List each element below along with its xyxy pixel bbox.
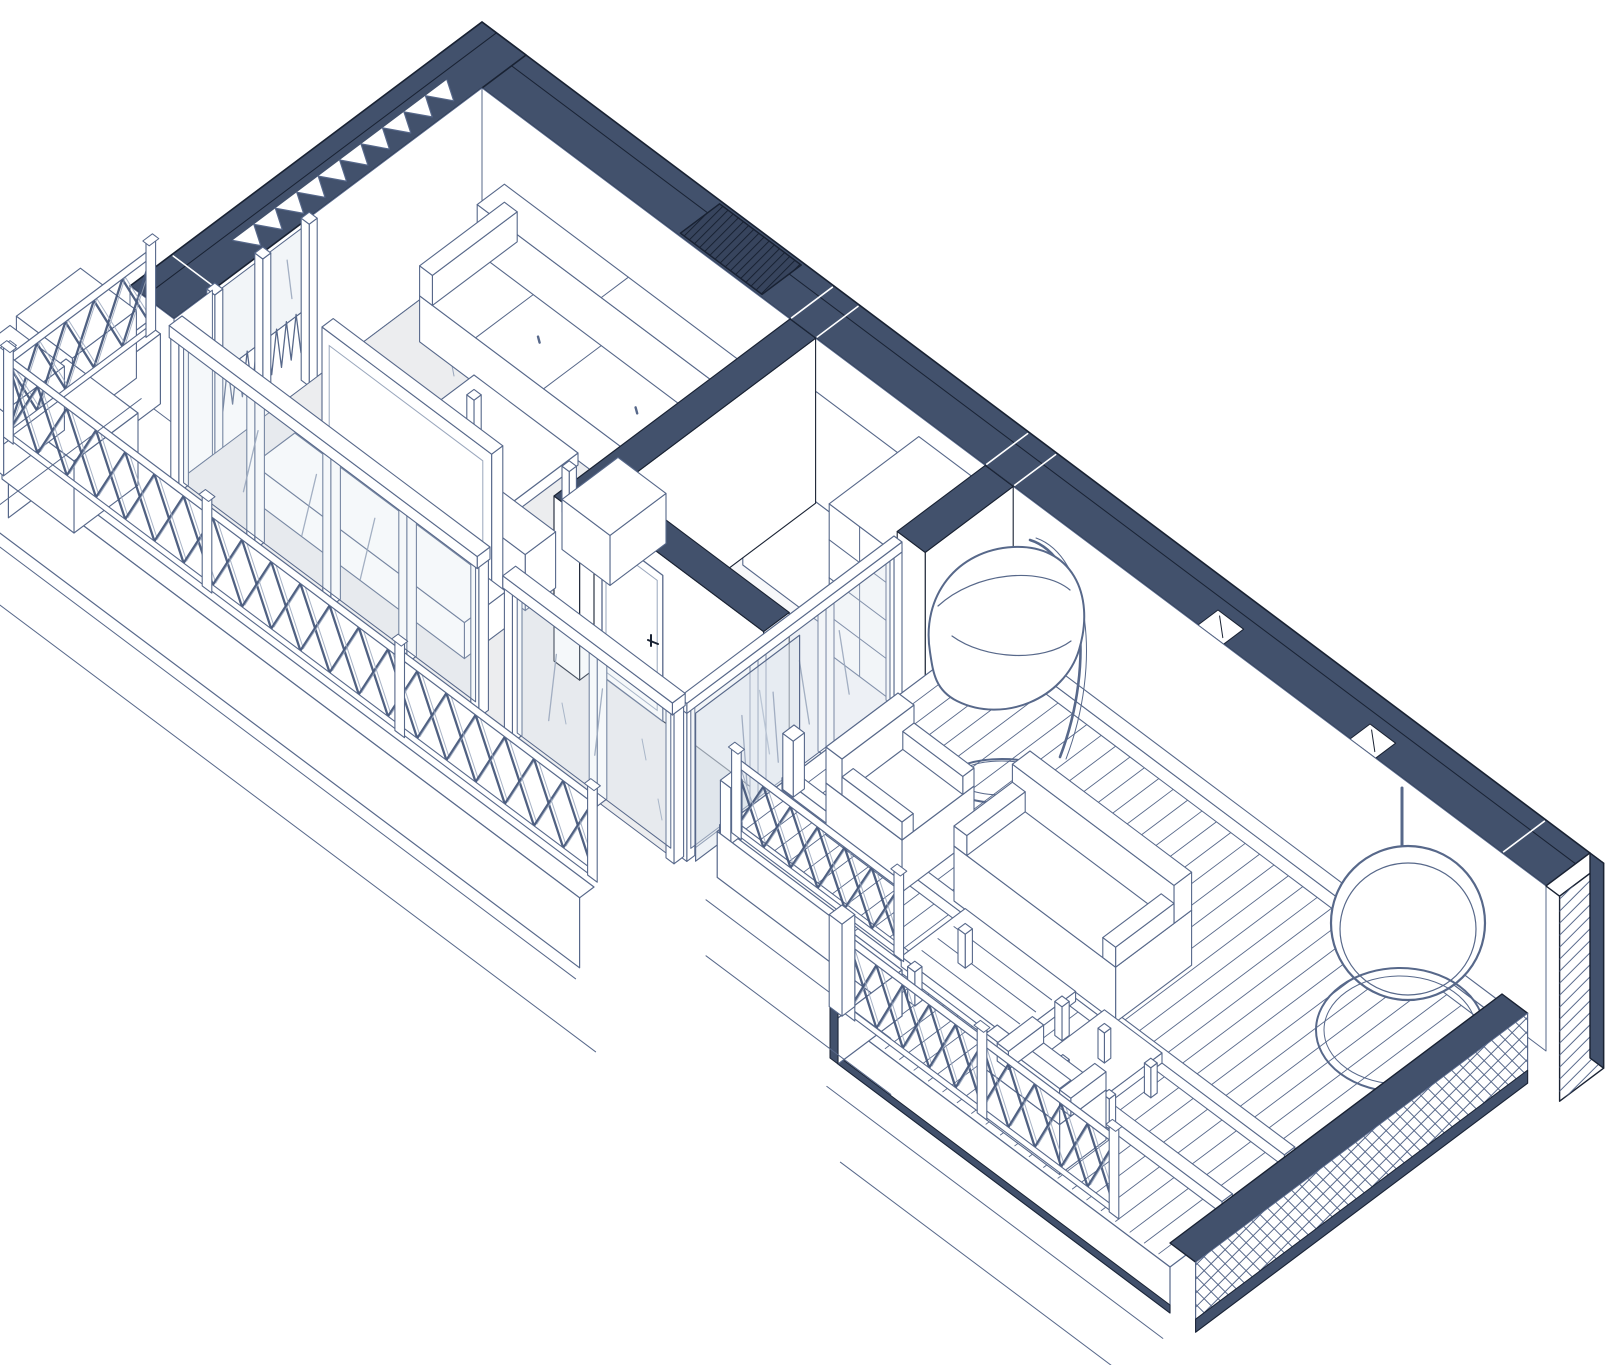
deck-jog-post (829, 905, 855, 1016)
deck-beam-post-1 (783, 725, 805, 797)
deck-coffee-table-leg-1 (958, 923, 972, 968)
deck-corner-navy-post (830, 1006, 838, 1064)
axonometric-floor-plan (0, 0, 1620, 1365)
page: { "drawing": { "type": "axonometric-apar… (0, 0, 1620, 1365)
deck-side-table-leg-2 (1144, 1058, 1157, 1098)
nw-window-mullion-1 (301, 212, 317, 386)
deck-side-table-leg-1 (1098, 1023, 1111, 1063)
drawing-canvas (0, 0, 1620, 1365)
deck-coffee-table-leg-2 (1055, 996, 1069, 1041)
ne-wall-end-outer-strip (1590, 853, 1604, 1068)
